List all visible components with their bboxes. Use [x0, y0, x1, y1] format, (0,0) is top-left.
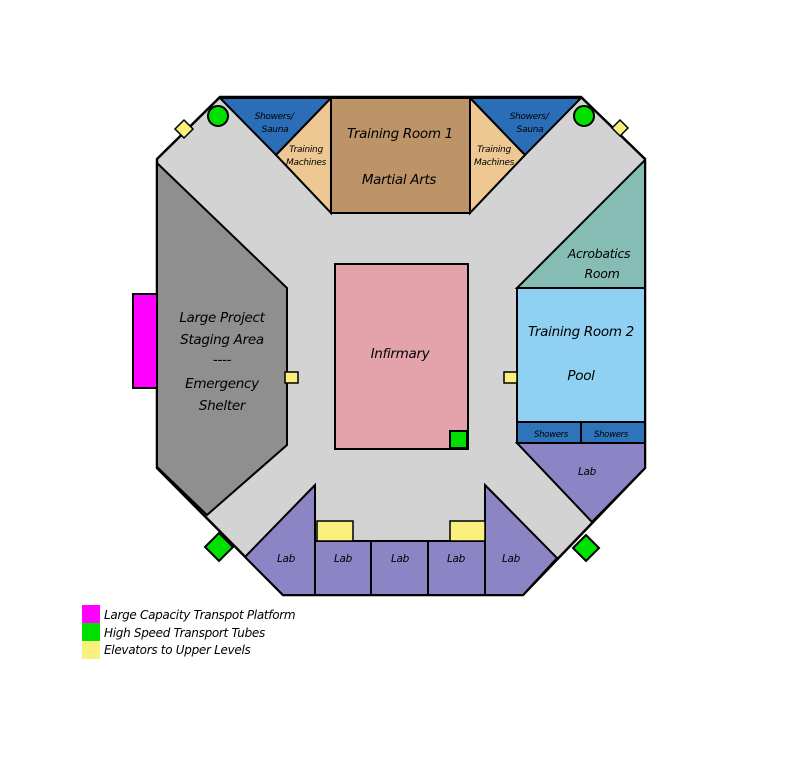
label-showers-cell-left: Showers [534, 430, 569, 440]
transport-tube-top-right [574, 106, 594, 126]
floorplan-page: Showers/ Sauna Showers/ Sauna Training M… [0, 0, 800, 779]
label-infirmary: Infirmary [371, 346, 431, 362]
elevator-bottom-right [450, 521, 485, 541]
label-showers-sauna-left-1: Showers/ [255, 112, 295, 122]
label-staging-4: Emergency [185, 376, 260, 392]
label-pool: Pool [567, 368, 595, 384]
label-training-machines-right-2: Machines [474, 158, 515, 168]
elevator-mid-left [285, 372, 298, 383]
label-lab-5: Lab [502, 553, 521, 565]
label-staging-1: Large Project [179, 310, 265, 326]
label-training-room-2: Training Room 2 [528, 324, 634, 340]
legend-swatch-tubes [82, 623, 100, 641]
label-showers-sauna-left-2: Sauna [262, 125, 289, 135]
transport-tube-infirmary [450, 431, 467, 448]
elevator-bottom-left [317, 521, 353, 541]
label-showers-sauna-right-1: Showers/ [510, 112, 550, 122]
legend-swatch-elevators [82, 641, 100, 659]
room-training-room-1 [331, 98, 470, 213]
legend-swatch-platform [82, 605, 100, 623]
label-staging-3: ---- [213, 352, 232, 368]
label-training-machines-right-1: Training [477, 145, 511, 155]
label-showers-cell-right: Showers [594, 430, 629, 440]
label-acrobatics-2: Room [585, 266, 620, 281]
label-staging-5: Shelter [199, 398, 247, 414]
label-lab-right: Lab [578, 466, 597, 478]
label-lab-4: Lab [447, 553, 466, 565]
label-staging-2: Staging Area [180, 332, 264, 348]
label-acrobatics-1: Acrobatics [567, 246, 631, 261]
label-martial-arts: Martial Arts [362, 172, 437, 188]
legend: Large Capacity Transpot Platform High Sp… [82, 605, 295, 659]
legend-label-platform: Large Capacity Transpot Platform [104, 608, 295, 622]
floorplan-svg: Showers/ Sauna Showers/ Sauna Training M… [0, 0, 800, 779]
label-lab-2: Lab [334, 553, 353, 565]
label-training-room-1: Training Room 1 [347, 126, 453, 142]
label-lab-3: Lab [391, 553, 410, 565]
room-lab-3 [371, 541, 428, 595]
label-training-machines-left-1: Training [289, 145, 323, 155]
transport-platform [133, 294, 157, 388]
legend-label-tubes: High Speed Transport Tubes [104, 626, 265, 640]
room-training-room-2 [517, 288, 645, 422]
label-lab-1: Lab [277, 553, 296, 565]
room-lab-2 [315, 541, 371, 595]
transport-tube-top-left [208, 106, 228, 126]
label-showers-sauna-right-2: Sauna [517, 125, 544, 135]
legend-label-elevators: Elevators to Upper Levels [104, 643, 250, 657]
elevator-mid-right [504, 372, 517, 383]
label-training-machines-left-2: Machines [286, 158, 327, 168]
room-lab-4 [428, 541, 485, 595]
